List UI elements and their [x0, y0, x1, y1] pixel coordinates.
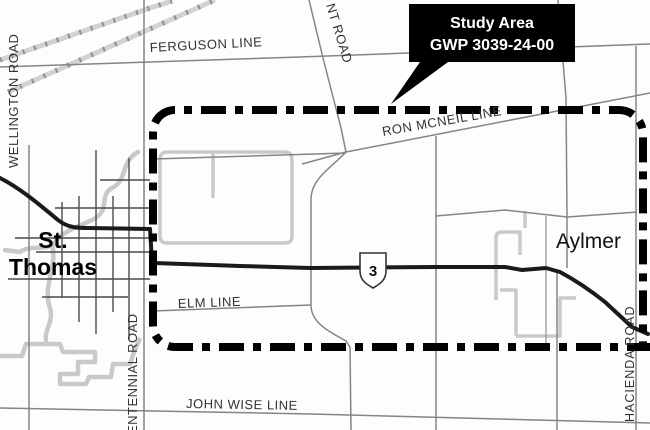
highway-shield-number: 3: [369, 263, 377, 280]
highway-3-line: [0, 178, 648, 334]
highway-3-shield: 3: [360, 253, 386, 288]
st-thomas-label-line1: St.: [38, 227, 67, 253]
study-area-map: 3 WELLINGTON ROAD FERGUSON LINE NT ROAD …: [0, 0, 650, 430]
ferguson-line-label: FERGUSON LINE: [149, 34, 262, 55]
centennial-road-label: ENTENNIAL ROAD: [125, 313, 140, 430]
callout-leader: [391, 62, 448, 104]
aylmer-label: Aylmer: [556, 230, 621, 253]
ron-mcneil-road: [302, 93, 650, 164]
study-area-boundary: [153, 110, 650, 347]
hacienda-road-label: HACIENDA ROAD: [623, 306, 637, 423]
wellington-road-label: WELLINGTON ROAD: [6, 34, 21, 168]
callout-gwp-number: GWP 3039-24-00: [430, 37, 554, 54]
rail-loop-west: [160, 152, 292, 243]
st-thomas-label-line2: Thomas: [9, 254, 97, 280]
rail-zigzag-southwest: [0, 338, 140, 384]
map-canvas: 3 WELLINGTON ROAD FERGUSON LINE NT ROAD …: [0, 0, 650, 430]
john-wise-line-label: JOHN WISE LINE: [186, 396, 298, 413]
study-area-callout: Study Area GWP 3039-24-00: [391, 4, 575, 104]
john-wise-road: [0, 408, 650, 423]
elm-line-label: ELM LINE: [178, 294, 242, 311]
callout-title: Study Area: [450, 15, 534, 32]
